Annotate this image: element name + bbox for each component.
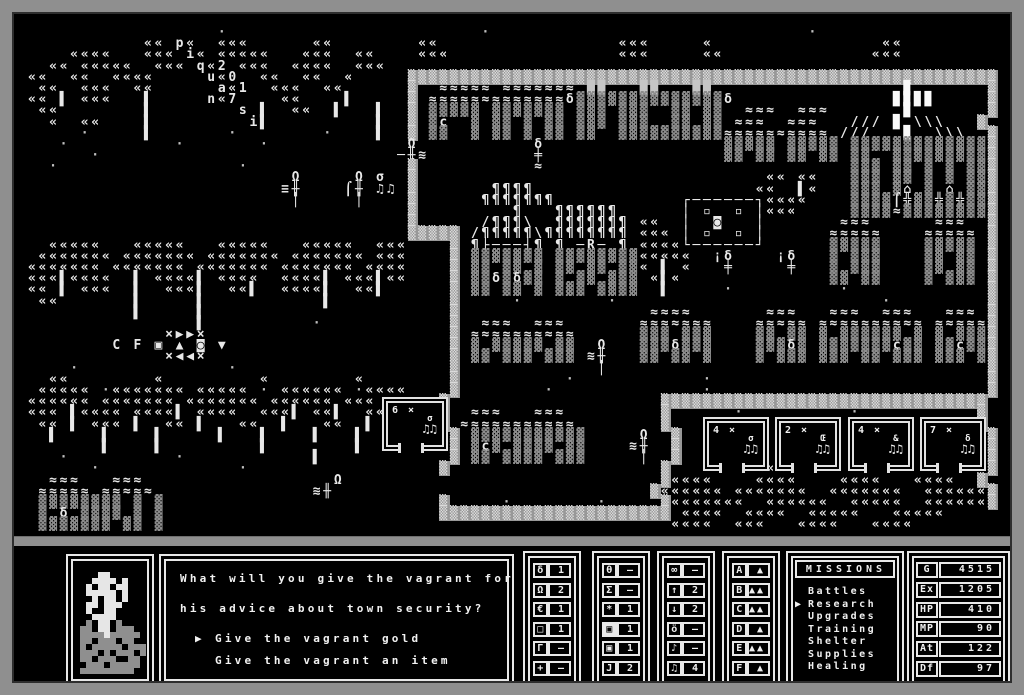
encounter-gate xyxy=(864,463,890,473)
world-map-area: · · · «« p« ««« «« «« ««« « «« «««« ««« … xyxy=(12,12,1012,536)
unit-count-value: ▲ xyxy=(747,622,771,637)
unit-symbol-button[interactable]: Ω xyxy=(533,583,548,598)
unit-symbol-button[interactable]: ö xyxy=(667,622,682,637)
unit-symbol-button[interactable]: J xyxy=(602,661,617,676)
unit-count-value: ▲ xyxy=(747,661,771,676)
unit-count-value: ▲▲ xyxy=(747,583,771,598)
encounter-notes-glyph: ♫♫ xyxy=(816,444,830,454)
unit-count-value: – xyxy=(548,661,572,676)
unit-row: A▲ xyxy=(732,562,770,579)
unit-count-value: – xyxy=(617,563,641,578)
unit-row: ♪– xyxy=(667,640,705,657)
unit-symbol-button[interactable]: δ xyxy=(533,563,548,578)
npc-portrait-panel xyxy=(66,554,154,686)
unit-symbol-button[interactable]: B xyxy=(732,583,747,598)
unit-row: ↓2 xyxy=(667,601,705,618)
unit-row: €1 xyxy=(533,601,571,618)
stat-row-at: At122 xyxy=(916,640,1001,658)
stat-label: HP xyxy=(916,602,938,618)
stat-row-mp: MP90 xyxy=(916,620,1001,638)
stat-row-ex: Ex1205 xyxy=(916,581,1001,599)
unit-count-value: 1 xyxy=(617,641,641,656)
dialog-option[interactable]: Give the vagrant an item xyxy=(195,654,501,667)
unit-symbol-button[interactable]: Γ xyxy=(533,641,548,656)
unit-count-value: ▲▲ xyxy=(747,602,771,617)
unit-row: J2 xyxy=(602,660,640,677)
mission-item-label: Training xyxy=(808,624,876,635)
encounter-box[interactable]: 2 ×Œ♫♫ xyxy=(775,417,841,471)
encounter-notes-glyph: ♫♫ xyxy=(961,444,975,454)
unit-row: *1 xyxy=(602,601,640,618)
mission-item-label: Shelter xyxy=(808,636,868,647)
unit-row: F▲ xyxy=(732,660,770,677)
dialog-option[interactable]: ▶Give the vagrant gold xyxy=(195,632,501,645)
unit-row: +– xyxy=(533,660,571,677)
unit-symbol-button[interactable]: A xyxy=(732,563,747,578)
encounter-gate xyxy=(936,463,962,473)
stat-label: At xyxy=(916,641,938,657)
unit-panel-3: ∞–↑2↓2ö–♪–♫4 xyxy=(657,551,715,688)
unit-symbol-button[interactable]: ∞ xyxy=(667,563,682,578)
unit-count-value: 2 xyxy=(548,583,572,598)
unit-panel-4: A▲B▲▲C▲▲D▲E▲▲F▲ xyxy=(722,551,780,688)
encounter-count: 6 × xyxy=(392,405,416,416)
unit-count-value: 2 xyxy=(617,661,641,676)
mission-item-label: Research xyxy=(808,599,876,610)
dialog-option-label: Give the vagrant gold xyxy=(215,632,421,645)
unit-count-value: 1 xyxy=(548,602,572,617)
stat-value: 410 xyxy=(939,602,1001,618)
dialog-line: his advice about town security? xyxy=(180,602,501,615)
encounter-count: 4 × xyxy=(858,425,882,436)
unit-symbol-button[interactable]: ↑ xyxy=(667,583,682,598)
missions-title: MISSIONS xyxy=(795,560,895,578)
unit-count-value: – xyxy=(682,641,706,656)
encounter-count: 7 × xyxy=(930,425,954,436)
stat-value: 1205 xyxy=(939,582,1001,598)
unit-panel-1: δ1Ω2€1□1Γ–+– xyxy=(523,551,581,688)
encounter-gate xyxy=(398,443,424,453)
encounter-box[interactable]: 6 ×σ♫♫ xyxy=(382,397,448,451)
encounter-box[interactable]: 7 ×δ♫♫ xyxy=(920,417,986,471)
mission-item-label: Healing xyxy=(808,661,868,672)
mission-item-label: Upgrades xyxy=(808,611,876,622)
stat-value: 122 xyxy=(939,641,1001,657)
stat-label: MP xyxy=(916,621,938,637)
encounter-gate xyxy=(791,463,817,473)
dialog-option-label: Give the vagrant an item xyxy=(215,654,451,667)
unit-symbol-button[interactable]: € xyxy=(533,602,548,617)
mission-item-label: Battles xyxy=(808,586,868,597)
encounter-gate xyxy=(719,463,745,473)
unit-row: δ1 xyxy=(533,562,571,579)
mission-item-upgrades[interactable]: Upgrades xyxy=(795,611,895,624)
unit-symbol-button[interactable]: ↓ xyxy=(667,602,682,617)
encounter-box[interactable]: 4 ×σ♫♫ xyxy=(703,417,769,471)
encounter-count: 2 × xyxy=(785,425,809,436)
unit-row: ö– xyxy=(667,621,705,638)
stat-row-df: Df97 xyxy=(916,660,1001,678)
stat-label: Ex xyxy=(916,582,938,598)
unit-row: E▲▲ xyxy=(732,640,770,657)
unit-count-value: 1 xyxy=(548,563,572,578)
stat-row-hp: HP410 xyxy=(916,601,1001,619)
unit-row: C▲▲ xyxy=(732,601,770,618)
unit-symbol-button[interactable]: ♪ xyxy=(667,641,682,656)
stat-value: 97 xyxy=(939,661,1001,677)
unit-row: □1 xyxy=(533,621,571,638)
unit-count-value: – xyxy=(617,583,641,598)
unit-row: ∞– xyxy=(667,562,705,579)
missions-list: Battles▶ResearchUpgradesTrainingShelterS… xyxy=(795,586,895,674)
selection-arrow-icon: ▶ xyxy=(195,632,205,645)
unit-count-value: – xyxy=(682,622,706,637)
missions-panel: MISSIONS Battles▶ResearchUpgradesTrainin… xyxy=(786,551,904,688)
unit-symbol-button[interactable]: E xyxy=(732,641,747,656)
unit-symbol-button[interactable]: ♫ xyxy=(667,661,682,676)
npc-portrait xyxy=(74,566,146,674)
hud-divider xyxy=(10,536,1014,546)
unit-symbol-button[interactable]: θ xyxy=(602,563,617,578)
unit-symbol-button[interactable]: ▣ xyxy=(602,622,617,637)
unit-symbol-button[interactable]: + xyxy=(533,661,548,676)
unit-row: Σ– xyxy=(602,582,640,599)
mission-item-supplies[interactable]: Supplies xyxy=(795,649,895,662)
unit-count-value: 1 xyxy=(617,602,641,617)
encounter-notes-glyph: ♫♫ xyxy=(889,444,903,454)
game-screen: · · · «« p« ««« «« «« ««« « «« «««« ««« … xyxy=(0,0,1024,695)
unit-row: Ω2 xyxy=(533,582,571,599)
unit-symbol-button[interactable]: C xyxy=(732,602,747,617)
mission-item-shelter[interactable]: Shelter xyxy=(795,636,895,649)
unit-row: ▣1 xyxy=(602,640,640,657)
encounter-box[interactable]: 4 ×&♫♫ xyxy=(848,417,914,471)
mission-item-research[interactable]: ▶Research xyxy=(795,599,895,612)
unit-row: θ– xyxy=(602,562,640,579)
mission-item-label: Supplies xyxy=(808,649,876,660)
encounter-count: 4 × xyxy=(713,425,737,436)
encounter-notes-glyph: ♫♫ xyxy=(744,444,758,454)
unit-symbol-button[interactable]: F xyxy=(732,661,747,676)
unit-panel-2: θ–Σ–*1▣1▣1J2 xyxy=(592,551,650,688)
dialog-panel: What will you give the vagrant for his a… xyxy=(159,554,514,686)
stat-value: 4515 xyxy=(939,562,1001,578)
dialog-options: ▶Give the vagrant goldGive the vagrant a… xyxy=(180,632,501,667)
stat-row-g: G4515 xyxy=(916,561,1001,579)
unit-row: B▲▲ xyxy=(732,582,770,599)
unit-symbol-button[interactable]: D xyxy=(732,622,747,637)
unit-row: ▣1 xyxy=(602,621,640,638)
unit-symbol-button[interactable]: ▣ xyxy=(602,641,617,656)
unit-count-value: – xyxy=(548,641,572,656)
unit-count-value: ▲▲ xyxy=(747,641,771,656)
unit-count-value: ▲ xyxy=(747,563,771,578)
unit-count-value: 2 xyxy=(682,583,706,598)
dialog-line: What will you give the vagrant for xyxy=(180,572,501,585)
player-stats-panel: G4515Ex1205HP410MP90At122Df97 xyxy=(907,551,1010,688)
unit-row: D▲ xyxy=(732,621,770,638)
unit-symbol-button[interactable]: Σ xyxy=(602,583,617,598)
unit-row: ♫4 xyxy=(667,660,705,677)
unit-row: Γ– xyxy=(533,640,571,657)
unit-count-value: 1 xyxy=(617,622,641,637)
stat-value: 90 xyxy=(939,621,1001,637)
unit-symbol-button[interactable]: □ xyxy=(533,622,548,637)
mission-item-training[interactable]: Training xyxy=(795,624,895,637)
unit-count-value: 1 xyxy=(548,622,572,637)
mission-item-healing[interactable]: Healing xyxy=(795,661,895,674)
stat-label: G xyxy=(916,562,938,578)
encounter-notes-glyph: ♫♫ xyxy=(423,424,437,434)
unit-symbol-button[interactable]: * xyxy=(602,602,617,617)
unit-row: ↑2 xyxy=(667,582,705,599)
unit-count-value: – xyxy=(682,563,706,578)
selection-arrow-icon: ▶ xyxy=(795,599,804,612)
stat-label: Df xyxy=(916,661,938,677)
unit-count-value: 2 xyxy=(682,602,706,617)
mission-item-battles[interactable]: Battles xyxy=(795,586,895,599)
unit-count-value: 4 xyxy=(682,661,706,676)
